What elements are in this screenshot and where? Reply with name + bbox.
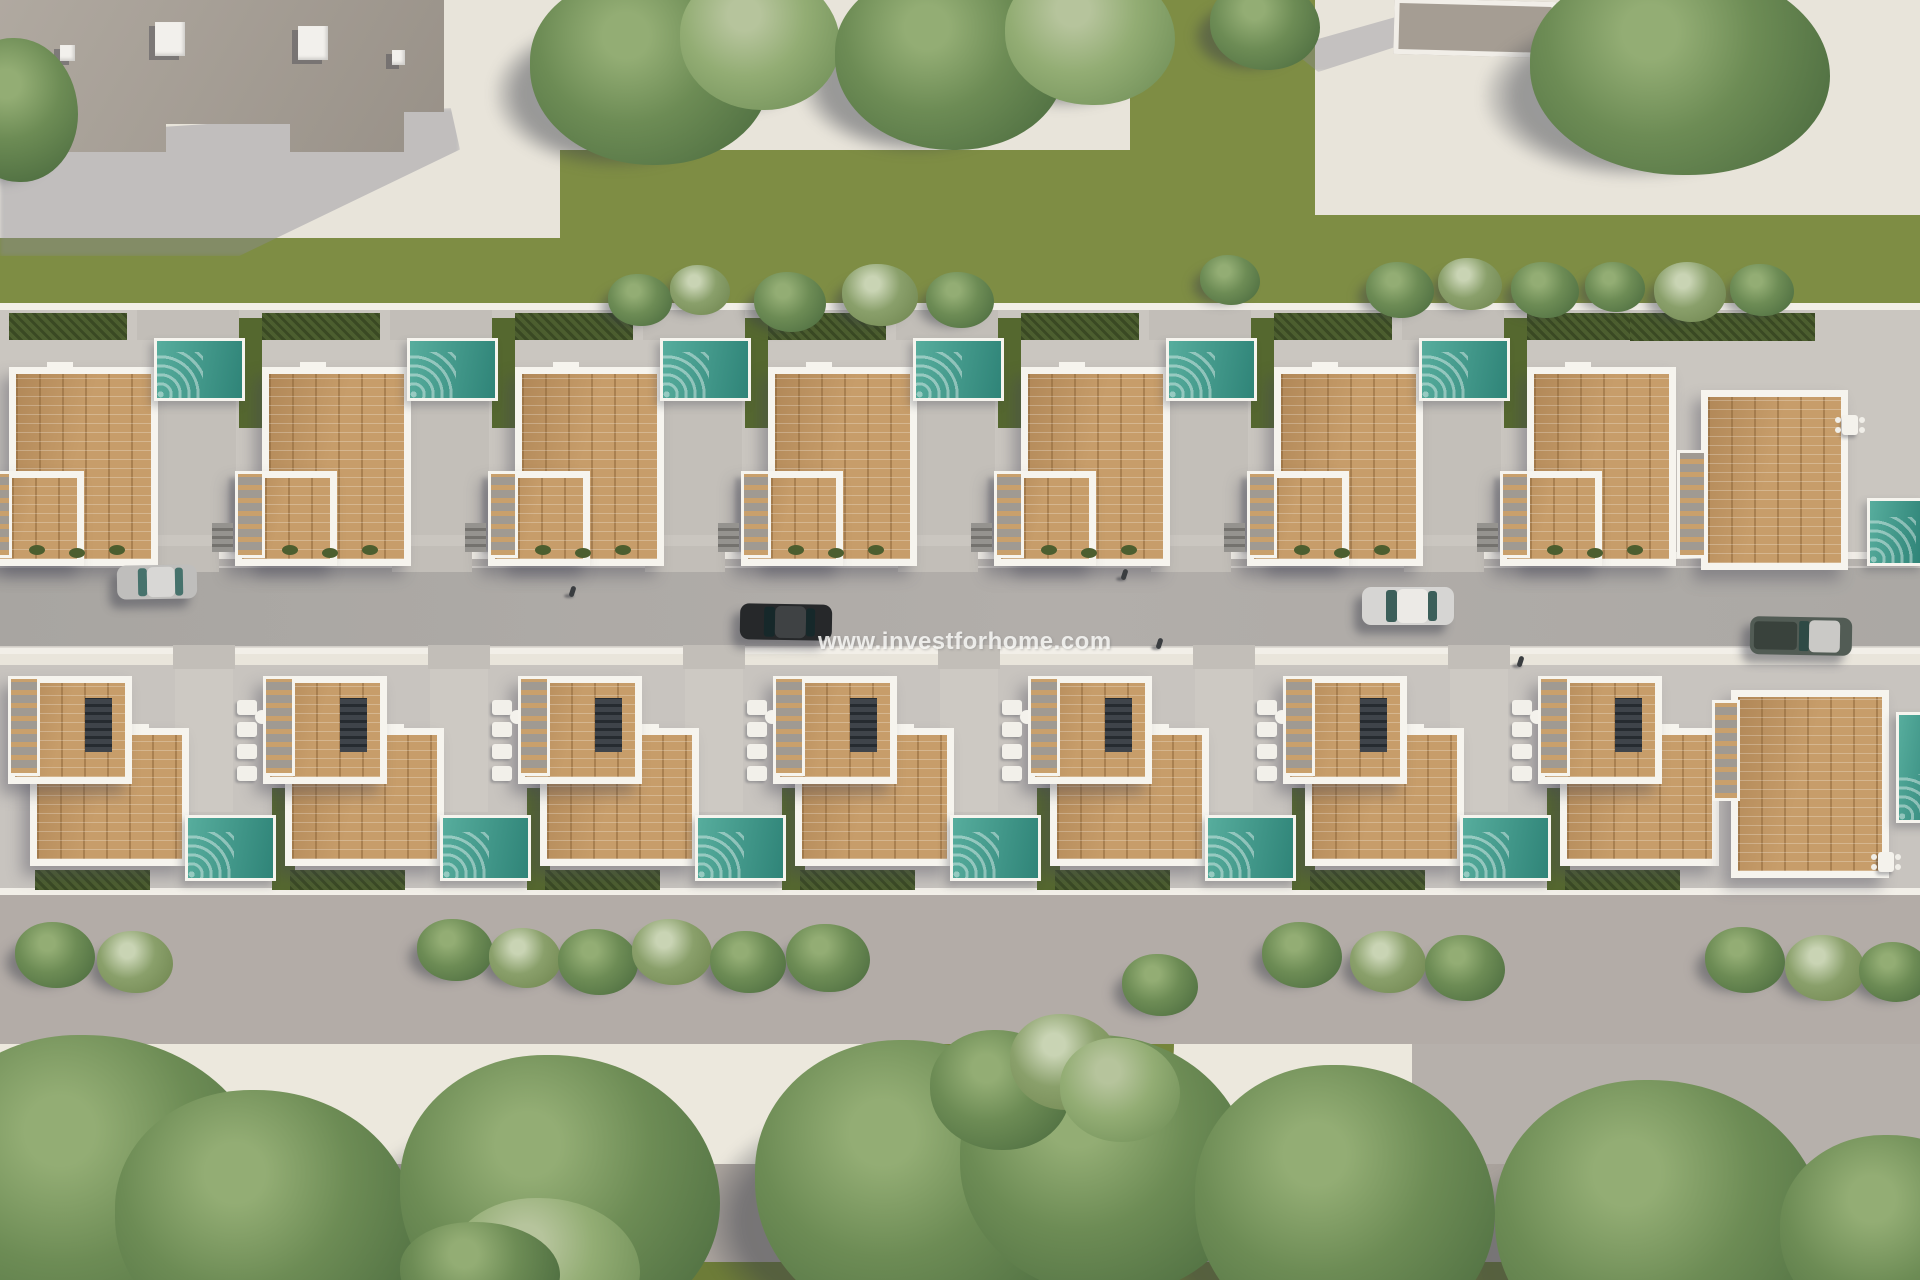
bush	[1585, 262, 1645, 311]
bush	[710, 931, 786, 993]
front-bush	[322, 548, 338, 558]
villa-roof-terrace-corner	[1731, 690, 1889, 878]
car-rear-window	[1428, 591, 1437, 621]
front-hedge	[1565, 870, 1680, 890]
pool-top-row	[1419, 338, 1510, 401]
stairs	[1477, 523, 1498, 552]
car-white	[1362, 587, 1454, 625]
parapet-step	[300, 362, 326, 372]
bush	[1366, 262, 1434, 318]
pool-steps-rings	[410, 352, 456, 398]
pergola-ladder	[1500, 471, 1530, 558]
car-silver	[117, 564, 198, 599]
sun-lounger	[747, 722, 767, 737]
stairs-dark	[850, 698, 877, 752]
sun-lounger	[1002, 700, 1022, 715]
bush	[670, 265, 730, 314]
sun-lounger	[237, 700, 257, 715]
front-hedge	[290, 870, 405, 890]
patio-chair	[1835, 427, 1841, 433]
stairs	[1224, 523, 1245, 552]
bush	[489, 928, 561, 987]
pergola-ladder	[1028, 676, 1060, 776]
bush	[1262, 922, 1342, 988]
pergola-ladder	[0, 471, 12, 558]
truck-bed	[1754, 621, 1797, 651]
car-roof	[1809, 620, 1840, 652]
back-walkway	[137, 310, 239, 340]
villa-roof-terrace-corner	[1701, 390, 1848, 570]
front-hedge	[35, 870, 150, 890]
sun-lounger	[1002, 744, 1022, 759]
patio-chair	[1895, 864, 1901, 870]
car-windshield	[1799, 621, 1810, 652]
pool-top-row	[407, 338, 498, 401]
sun-lounger	[1257, 766, 1277, 781]
car-roof	[147, 567, 175, 597]
front-bush	[535, 545, 551, 555]
stairs-dark	[340, 698, 367, 752]
sun-lounger	[1512, 700, 1532, 715]
back-hedge	[262, 313, 380, 340]
front-bush	[109, 545, 125, 555]
patio-chair	[1859, 427, 1865, 433]
stairs-dark	[1615, 698, 1642, 752]
pool-corner-bottom	[1896, 712, 1920, 823]
pool-steps-rings	[188, 832, 234, 878]
pool-steps-rings	[1422, 352, 1468, 398]
sun-lounger	[747, 766, 767, 781]
back-walkway	[390, 310, 492, 340]
sun-lounger	[492, 766, 512, 781]
pool-steps-rings	[663, 352, 709, 398]
parapet-step	[553, 362, 579, 372]
pool-steps-rings	[157, 352, 203, 398]
driveway-bottom	[428, 645, 490, 669]
sun-lounger	[1257, 700, 1277, 715]
front-bush	[1041, 545, 1057, 555]
patio-chair	[1871, 854, 1877, 860]
sun-lounger	[1257, 744, 1277, 759]
pergola-ladder	[518, 676, 550, 776]
front-bush	[615, 545, 631, 555]
sun-lounger	[1257, 722, 1277, 737]
bush	[558, 929, 638, 995]
car-windshield	[138, 568, 148, 597]
sun-lounger	[1512, 744, 1532, 759]
bush	[926, 272, 994, 328]
front-bush	[1121, 545, 1137, 555]
pool-top-row	[660, 338, 751, 401]
sun-lounger	[1002, 722, 1022, 737]
pool-bottom-row	[440, 815, 531, 881]
pergola-ladder	[1712, 700, 1740, 801]
sun-lounger	[492, 700, 512, 715]
sun-lounger	[1002, 766, 1022, 781]
pergola-ladder	[235, 471, 265, 558]
pool-bottom-row	[950, 815, 1041, 881]
pergola-ladder	[263, 676, 295, 776]
pergola-ladder	[1538, 676, 1570, 776]
band-gray-band	[0, 893, 1920, 1044]
front-bush	[575, 548, 591, 558]
bush	[1438, 258, 1502, 310]
parapet-step	[1312, 362, 1338, 372]
front-bush	[1294, 545, 1310, 555]
driveway-bottom	[1193, 645, 1255, 669]
pool-top-row	[913, 338, 1004, 401]
pool-steps-rings	[953, 832, 999, 878]
bush	[754, 272, 826, 331]
pergola-ladder	[8, 676, 40, 776]
sun-lounger	[1512, 722, 1532, 737]
bush	[1730, 264, 1794, 316]
pool-steps-rings	[1899, 774, 1920, 820]
bush	[1122, 954, 1198, 1016]
front-bush	[282, 545, 298, 555]
front-bush	[788, 545, 804, 555]
front-bush	[1374, 545, 1390, 555]
parapet-step	[1565, 362, 1591, 372]
front-bush	[1547, 545, 1563, 555]
front-bush	[1081, 548, 1097, 558]
pool-steps-rings	[1870, 517, 1916, 563]
stairs-dark	[85, 698, 112, 752]
car-roof	[775, 606, 807, 638]
sun-lounger	[1512, 766, 1532, 781]
bush	[786, 924, 870, 993]
driveway-bottom	[173, 645, 235, 669]
pool-patio	[1159, 395, 1248, 535]
bush	[608, 274, 672, 326]
pool-patio	[147, 395, 236, 535]
pergola-ladder	[1677, 450, 1707, 558]
bush	[97, 931, 173, 993]
pergola-ladder	[488, 471, 518, 558]
stairs-dark	[595, 698, 622, 752]
back-hedge	[9, 313, 127, 340]
roof-vent	[298, 26, 328, 60]
bush	[1654, 262, 1726, 321]
sun-lounger	[237, 744, 257, 759]
stairs	[465, 523, 486, 552]
driveway-bottom	[1448, 645, 1510, 669]
driveway-bottom	[683, 645, 745, 669]
front-bush	[1587, 548, 1603, 558]
sun-lounger	[747, 744, 767, 759]
pool-bottom-row	[1205, 815, 1296, 881]
front-hedge	[1310, 870, 1425, 890]
patio-chair	[1859, 417, 1865, 423]
pool-bottom-row	[695, 815, 786, 881]
pool-steps-rings	[1208, 832, 1254, 878]
sun-lounger	[492, 744, 512, 759]
front-hedge	[1055, 870, 1170, 890]
pool-patio	[400, 395, 489, 535]
stairs	[718, 523, 739, 552]
car-pickup	[1750, 616, 1853, 656]
bush	[632, 919, 712, 985]
sun-lounger	[237, 722, 257, 737]
car-rear-window	[806, 608, 816, 637]
roof-vent	[392, 50, 405, 65]
pool-corner-top	[1867, 498, 1920, 566]
sun-lounger	[492, 722, 512, 737]
pool-top-row	[1166, 338, 1257, 401]
patio-chair	[1871, 864, 1877, 870]
front-hedge	[545, 870, 660, 890]
pool-top-row	[154, 338, 245, 401]
pool-patio	[653, 395, 742, 535]
bush	[842, 264, 918, 326]
sun-lounger	[747, 700, 767, 715]
pool-steps-rings	[1169, 352, 1215, 398]
roof-vent	[60, 45, 75, 61]
watermark-text: www.investforhome.com	[818, 628, 1112, 656]
front-bush	[362, 545, 378, 555]
front-hedge	[800, 870, 915, 890]
parapet-step	[806, 362, 832, 372]
bush	[1425, 935, 1505, 1001]
patio-chair	[1835, 417, 1841, 423]
bush	[15, 922, 95, 988]
pool-steps-rings	[443, 832, 489, 878]
car-rear-window	[174, 568, 182, 595]
pool-steps-rings	[698, 832, 744, 878]
stairs	[971, 523, 992, 552]
front-bush	[1334, 548, 1350, 558]
front-bush	[828, 548, 844, 558]
parapet-step	[47, 362, 73, 372]
front-bush	[1627, 545, 1643, 555]
pergola-ladder	[741, 471, 771, 558]
stairs-dark	[1105, 698, 1132, 752]
sun-lounger	[237, 766, 257, 781]
bush	[1511, 262, 1579, 318]
bush	[1705, 927, 1785, 993]
car-windshield	[1386, 590, 1397, 622]
bush	[417, 919, 493, 981]
back-hedge	[1021, 313, 1139, 340]
patio-table	[1878, 852, 1894, 872]
bush	[1785, 935, 1865, 1001]
front-bush	[29, 545, 45, 555]
front-bush	[868, 545, 884, 555]
stairs	[212, 523, 233, 552]
back-walkway	[1149, 310, 1251, 340]
front-bush	[69, 548, 85, 558]
pergola-ladder	[994, 471, 1024, 558]
pergola-ladder	[1247, 471, 1277, 558]
stairs-dark	[1360, 698, 1387, 752]
pool-steps-rings	[916, 352, 962, 398]
pool-patio	[906, 395, 995, 535]
roof-vent	[155, 22, 185, 56]
pool-steps-rings	[1463, 832, 1509, 878]
pool-bottom-row	[185, 815, 276, 881]
patio-chair	[1895, 854, 1901, 860]
car-roof	[1397, 589, 1428, 622]
pergola-ladder	[1283, 676, 1315, 776]
pool-bottom-row	[1460, 815, 1551, 881]
pool-patio	[1412, 395, 1501, 535]
patio-table	[1842, 415, 1858, 435]
car-windshield	[764, 606, 776, 636]
bush	[1350, 931, 1426, 993]
pergola-ladder	[773, 676, 805, 776]
parapet-step	[1059, 362, 1085, 372]
bush	[1200, 255, 1260, 304]
aerial-render-scene: www.investforhome.com	[0, 0, 1920, 1280]
